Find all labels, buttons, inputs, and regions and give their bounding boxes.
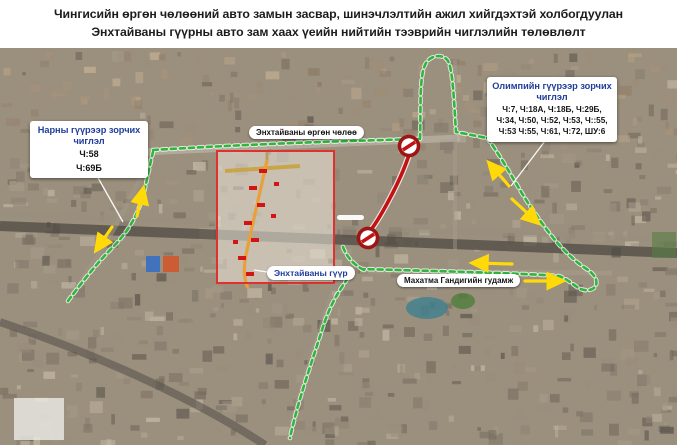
no-entry-icon — [357, 227, 380, 250]
olympic-bridge-callout: Олимпийн гүүрээр зорчих чиглэл Ч:7, Ч:18… — [487, 77, 617, 142]
map-overlay — [0, 0, 677, 445]
park — [652, 232, 676, 258]
olympic-routes-line: Ч:34, Ч:50, Ч:52, Ч:53, Ч::55, — [490, 116, 614, 127]
no-entry-icon — [398, 135, 421, 158]
stadium — [406, 297, 448, 319]
olympic-routes-line: Ч:53 Ч:55, Ч:61, Ч:72, ШУ:6 — [490, 127, 614, 138]
naran-route: Ч:69Б — [33, 163, 145, 175]
olympic-routes-line: Ч:7, Ч:18А, Ч:18Б, Ч:29Б, — [490, 105, 614, 116]
title-line-1: Чингисийн өргөн чөлөөний авто замын засв… — [54, 6, 623, 24]
blank-label — [337, 215, 364, 220]
orange-roof-building — [163, 256, 179, 272]
large-white-building — [14, 398, 64, 440]
naran-route: Ч:58 — [33, 149, 145, 161]
page-title: Чингисийн өргөн чөлөөний авто замын засв… — [0, 0, 677, 48]
naran-callout-title: Нарны гүүрээр зорчих чиглэл — [33, 125, 145, 147]
sports-field — [451, 293, 475, 309]
street-label: Махатма Гандигийн гудамж — [397, 274, 520, 287]
bridge-label: Энхтайваны гүүр — [267, 266, 355, 280]
closed-road-route — [370, 155, 409, 231]
blue-roof-building — [146, 256, 160, 272]
title-line-2: Энхтайваны гүүрны авто зам хаах үеийн ни… — [91, 24, 585, 42]
naran-bridge-callout: Нарны гүүрээр зорчих чиглэл Ч:58 Ч:69Б — [30, 121, 148, 178]
arrow-left-icon — [474, 263, 512, 264]
boulevard-label: Энхтайваны өргөн чөлөө — [249, 126, 364, 139]
transport-plan-infographic: Чингисийн өргөн чөлөөний авто замын засв… — [0, 0, 677, 445]
olympic-callout-title: Олимпийн гүүрээр зорчих чиглэл — [490, 81, 614, 103]
